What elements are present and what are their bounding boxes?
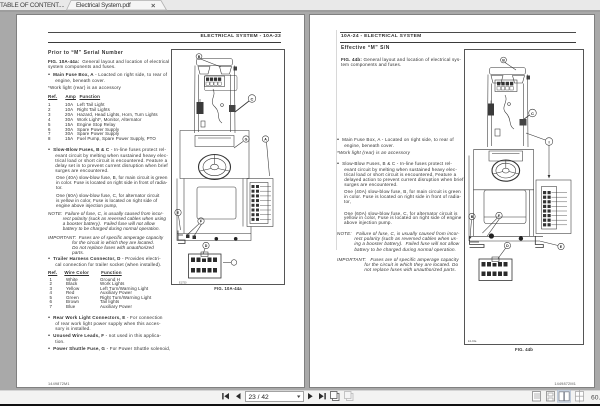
svg-text:E: E	[560, 245, 563, 249]
svg-text:F: F	[498, 214, 501, 218]
svg-text:D: D	[205, 244, 208, 248]
svg-text:G: G	[245, 137, 248, 141]
svg-text:E1-04a: E1-04a	[468, 339, 477, 343]
svg-text:A: A	[264, 137, 267, 141]
svg-text:B: B	[471, 215, 474, 219]
svg-text:E1750: E1750	[179, 280, 187, 284]
svg-text:I: I	[548, 139, 549, 144]
svg-text:C: C	[531, 110, 534, 115]
svg-text:23 / 42: 23 / 42	[249, 394, 269, 401]
svg-text:F: F	[200, 219, 203, 223]
svg-text:B: B	[502, 58, 505, 62]
svg-text:D: D	[506, 244, 509, 248]
svg-text:C: C	[251, 96, 254, 101]
svg-text:60.: 60.	[591, 394, 600, 401]
svg-text:E: E	[177, 211, 180, 215]
